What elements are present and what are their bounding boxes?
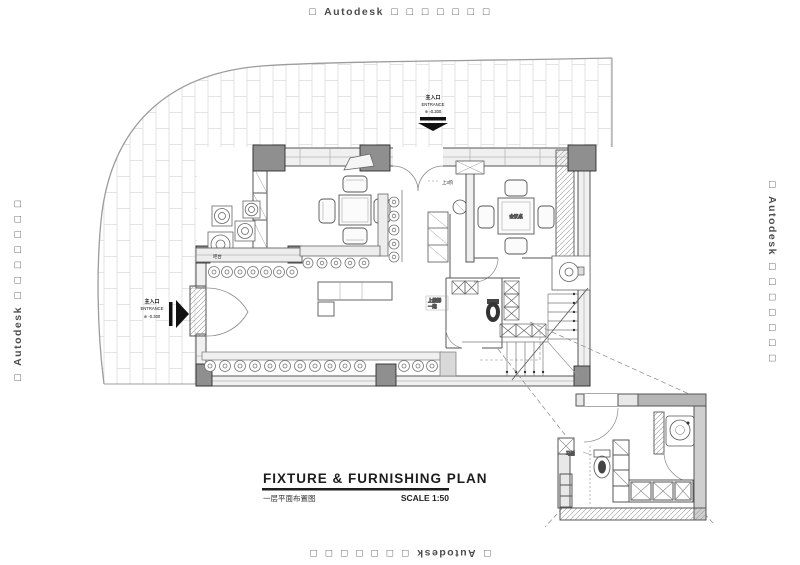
detail-plan-bathroom: 马桶 [558,394,706,520]
meeting-table-set: 会议桌 [478,180,554,254]
entrance-left-label-en: ENTRANCE [140,306,163,311]
detail-toilet-label: 马桶 [566,450,575,457]
building-shell [190,147,592,386]
toilet-icon [486,299,500,322]
counter-label: 吧台 [213,253,222,260]
floor-plan-svg: 吧台 [0,0,800,565]
chair [343,176,367,192]
detail-washbasin-icon [666,416,694,446]
bar-counter-top-left: 吧台 [196,248,302,278]
plan-scale: SCALE 1:50 [401,493,449,503]
title-block: FIXTURE & FURNISHING PLAN 一层平面布置图 SCALE … [262,471,488,503]
kitchen-island [318,282,392,316]
chair [505,238,527,254]
window-bench [202,352,456,376]
bathroom: 上楼梯 一跑 [426,278,546,348]
tall-cabinet [428,212,448,262]
plan-subtitle: 一层平面布置图 [263,493,316,503]
bar-stools-row [209,267,298,278]
chair [505,180,527,196]
entrance-left-level: ⊕ -0.300 [144,314,161,319]
planter [243,201,260,218]
stair-note: 上楼梯 一跑 [426,296,448,310]
wall-niche-cabinet [456,161,484,174]
column-symbol [453,200,467,214]
entrance-top-level: ⊕ -0.300 [425,109,442,114]
staircase [462,288,588,380]
chair [343,228,367,244]
chair [478,206,494,228]
plan-title: FIXTURE & FURNISHING PLAN [263,471,488,486]
chair [319,199,335,223]
detail-toilet-icon [594,450,610,478]
entrance-top-label-en: ENTRANCE [421,102,444,107]
chair [538,206,554,228]
bench-stools [205,361,438,372]
entrance-top-label-cn: 主入口 [425,94,440,101]
svg-text:一跑: 一跑 [428,303,437,309]
drawing-canvas: □ Autodesk □ □ □ □ □ □ □ □ Autodesk □ □ … [0,0,800,565]
svg-text:上楼梯: 上楼梯 [428,297,442,304]
washbasin [552,256,590,290]
steps-note-label: 上3阶 [442,179,454,186]
entrance-left-label-cn: 主入口 [144,298,159,305]
steps-annotation: 上3阶 [428,179,454,186]
planter [212,206,232,226]
meeting-table-label: 会议桌 [509,213,523,220]
planter [235,221,255,241]
